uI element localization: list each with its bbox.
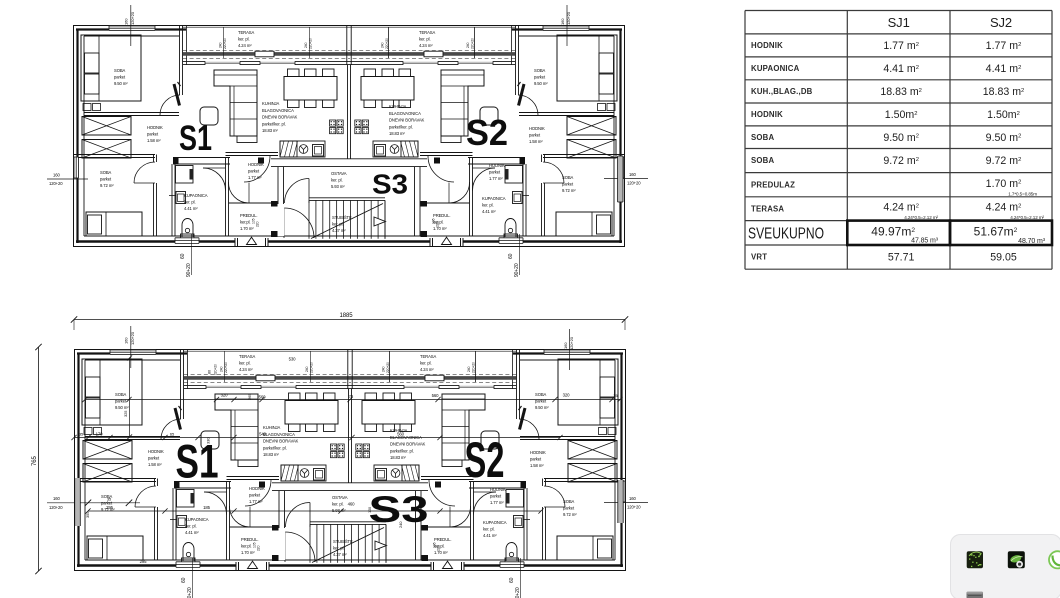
- svg-text:265: 265: [247, 393, 252, 400]
- svg-text:330: 330: [206, 437, 211, 444]
- svg-text:560: 560: [432, 393, 440, 398]
- svg-text:S3: S3: [372, 169, 408, 200]
- svg-text:530: 530: [289, 357, 297, 362]
- svg-text:160: 160: [124, 337, 129, 344]
- svg-text:80: 80: [208, 370, 212, 374]
- svg-text:220+20: 220+20: [214, 364, 218, 375]
- svg-text:51.67m2: 51.67m2: [974, 224, 1018, 238]
- svg-text:560: 560: [259, 395, 267, 400]
- svg-text:4.24 m2: 4.24 m2: [986, 202, 1022, 214]
- svg-text:47.85 m³: 47.85 m³: [911, 238, 939, 245]
- svg-text:120+20: 120+20: [627, 181, 641, 186]
- svg-text:325: 325: [123, 410, 128, 417]
- svg-text:9.50 m2: 9.50 m2: [986, 132, 1022, 144]
- svg-text:295: 295: [106, 505, 114, 510]
- svg-text:KUH.,BLAG.,DB: KUH.,BLAG.,DB: [751, 87, 813, 96]
- svg-text:765: 765: [32, 456, 38, 466]
- svg-text:120+20: 120+20: [49, 181, 63, 186]
- svg-text:S2: S2: [466, 112, 508, 153]
- svg-text:295: 295: [140, 559, 148, 564]
- svg-text:120+20: 120+20: [627, 505, 641, 510]
- svg-text:9.72 m2: 9.72 m2: [986, 155, 1022, 167]
- svg-text:1.70 m2: 1.70 m2: [986, 178, 1022, 190]
- svg-text:160: 160: [53, 173, 60, 178]
- svg-text:1.77 m2: 1.77 m2: [883, 40, 919, 52]
- svg-text:4.41 m2: 4.41 m2: [883, 63, 919, 75]
- svg-text:S2: S2: [465, 432, 505, 488]
- svg-text:PREDULAZ: PREDULAZ: [751, 180, 795, 189]
- svg-text:S1: S1: [179, 119, 212, 158]
- svg-text:18.83 m2: 18.83 m2: [880, 86, 922, 98]
- svg-text:540: 540: [259, 431, 267, 436]
- svg-text:100: 100: [368, 507, 372, 513]
- svg-text:460: 460: [348, 502, 356, 507]
- svg-text:320: 320: [221, 393, 229, 398]
- svg-text:560: 560: [397, 431, 405, 436]
- svg-text:1.7*0.5=0.85m: 1.7*0.5=0.85m: [1008, 191, 1037, 196]
- svg-text:S1: S1: [176, 435, 219, 488]
- svg-text:4.41 m2: 4.41 m2: [986, 63, 1022, 75]
- svg-text:160: 160: [629, 496, 636, 501]
- svg-text:1.50m2: 1.50m2: [987, 109, 1020, 121]
- svg-text:59.05: 59.05: [990, 252, 1017, 264]
- svg-text:1.77 m2: 1.77 m2: [986, 40, 1022, 52]
- svg-text:160: 160: [563, 342, 568, 349]
- svg-text:HODNIK: HODNIK: [751, 41, 783, 50]
- svg-text:1885: 1885: [340, 313, 354, 319]
- svg-text:185: 185: [203, 505, 211, 510]
- svg-text:160: 160: [560, 18, 565, 25]
- svg-text:320: 320: [563, 393, 571, 398]
- svg-text:240: 240: [398, 521, 403, 528]
- svg-text:TERASA: TERASA: [751, 204, 784, 213]
- svg-text:SJ1: SJ1: [888, 15, 910, 30]
- svg-text:4.24 m2: 4.24 m2: [883, 202, 919, 214]
- svg-text:57.71: 57.71: [888, 252, 915, 264]
- svg-text:160: 160: [124, 18, 129, 25]
- svg-text:170: 170: [96, 431, 104, 436]
- svg-text:SOBA: SOBA: [751, 133, 774, 142]
- svg-text:120+20: 120+20: [49, 505, 63, 510]
- svg-text:KUPAONICA: KUPAONICA: [751, 64, 800, 73]
- svg-text:9.50 m2: 9.50 m2: [883, 132, 919, 144]
- svg-text:HODNIK: HODNIK: [751, 110, 783, 119]
- svg-text:VRT: VRT: [751, 253, 767, 262]
- svg-text:9.72 m2: 9.72 m2: [883, 155, 919, 167]
- svg-text:49.97m2: 49.97m2: [871, 224, 915, 238]
- svg-text:SOBA: SOBA: [751, 156, 774, 165]
- svg-text:48.70 m³: 48.70 m³: [1018, 238, 1046, 245]
- svg-text:SJ2: SJ2: [990, 15, 1012, 30]
- svg-text:18.83 m2: 18.83 m2: [983, 86, 1025, 98]
- svg-text:160: 160: [53, 496, 60, 501]
- svg-text:SVEUKUPNO: SVEUKUPNO: [748, 226, 824, 243]
- svg-text:1.50m2: 1.50m2: [885, 109, 918, 121]
- svg-text:160: 160: [629, 172, 636, 177]
